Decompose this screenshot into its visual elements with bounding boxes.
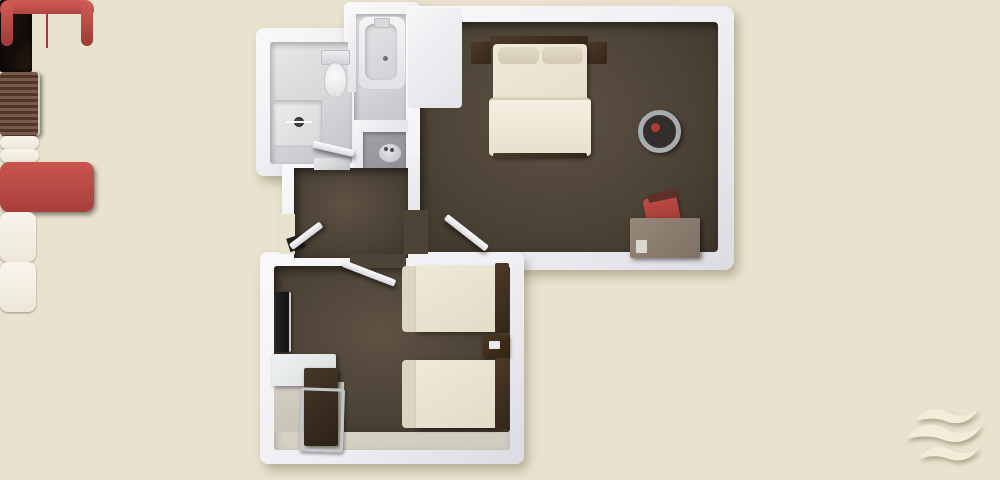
loveseat-seat-seam xyxy=(46,14,48,48)
closet-walls xyxy=(408,8,462,108)
floorplan-stage xyxy=(0,0,1000,480)
king-bed-footboard xyxy=(493,153,587,158)
bedroom-door-opening xyxy=(404,210,428,254)
twin-bed-lower-mattress xyxy=(416,360,498,428)
loveseat-back xyxy=(0,0,94,14)
bathtub-basin xyxy=(365,24,397,80)
twin-bed-upper-pillow xyxy=(0,212,36,262)
round-side-table xyxy=(638,110,681,153)
king-duvet xyxy=(489,98,591,156)
loveseat-arm-left xyxy=(1,2,13,46)
twin-bed-lower-headboard xyxy=(495,358,509,429)
twin-bed-upper-headboard xyxy=(495,263,509,333)
hallway-floor xyxy=(294,168,408,258)
king-pillow-front-left xyxy=(0,136,39,149)
king-pillow-back-right xyxy=(542,47,583,64)
chrome-chair-frame xyxy=(299,387,345,452)
desk-notepad xyxy=(636,240,647,253)
bathroom-door-opening xyxy=(314,158,350,170)
louvered-chest xyxy=(0,72,40,136)
bathtub-faucet xyxy=(374,18,390,28)
vanity-sink xyxy=(378,143,402,163)
loveseat-arm-right xyxy=(81,2,93,46)
shower-arm xyxy=(286,121,312,123)
king-pillow-front-right xyxy=(0,149,39,162)
king-pillow-back-left xyxy=(498,47,539,64)
toilet-bowl xyxy=(324,62,347,98)
red-loveseat xyxy=(0,162,94,212)
king-side-table-right xyxy=(587,42,607,64)
nightstand-phone xyxy=(489,341,500,349)
wall-tv xyxy=(276,292,291,352)
twin-bed-upper-mattress xyxy=(416,266,498,332)
vanity-faucet xyxy=(384,147,388,151)
king-side-table-left xyxy=(471,42,491,64)
round-table-decor xyxy=(651,123,660,132)
twin-bed-lower-pillow xyxy=(0,262,36,312)
triple-wave-logo xyxy=(896,404,988,470)
bathtub-drain xyxy=(383,56,388,61)
